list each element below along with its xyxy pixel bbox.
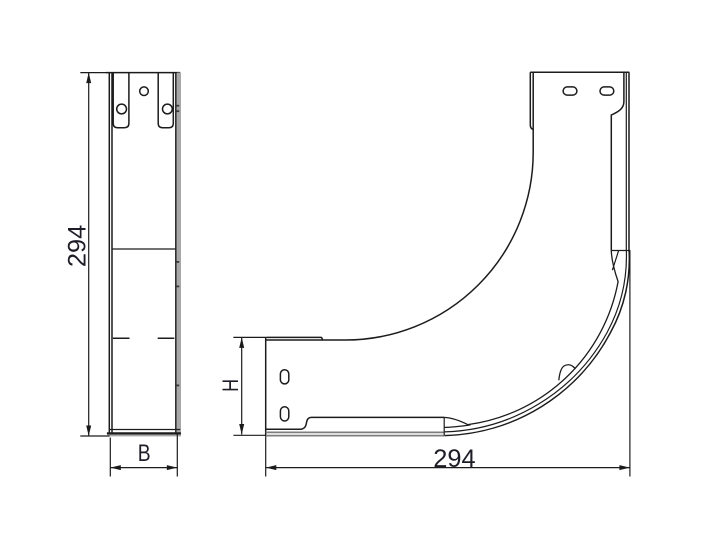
svg-text:294: 294 <box>433 445 475 473</box>
svg-text:294: 294 <box>64 225 92 267</box>
svg-text:B: B <box>138 439 151 466</box>
svg-text:H: H <box>219 379 243 392</box>
